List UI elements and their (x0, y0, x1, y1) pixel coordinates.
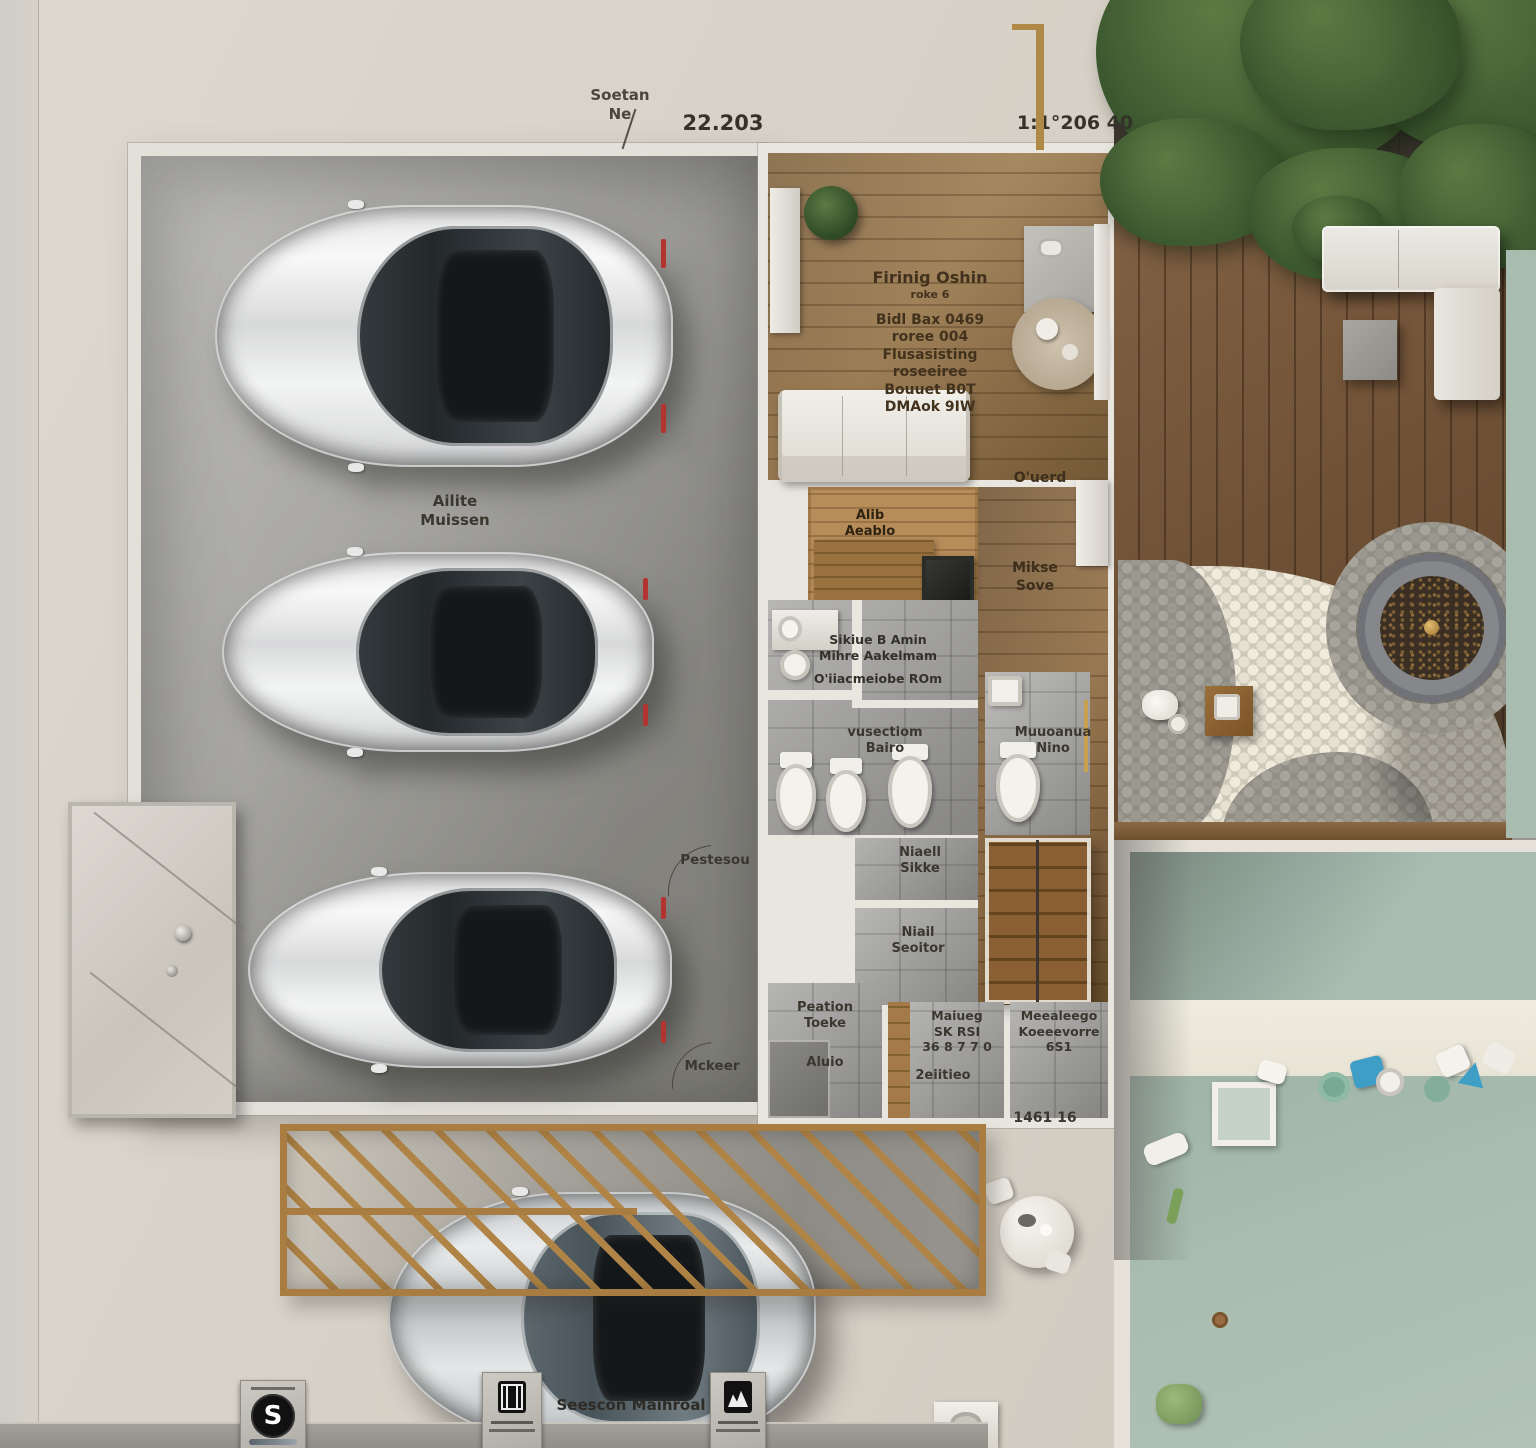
car-mirror (371, 1064, 387, 1073)
car-mirror (347, 547, 363, 556)
gate-plaque-text-2 (489, 1429, 535, 1432)
wc-sink (988, 676, 1022, 706)
storage-label: Peation Toeke Aluio (775, 1000, 875, 1071)
pool-sliver-right (1506, 250, 1536, 838)
laundry-label: Maiueg SK RSI 36 8 7 7 0 (912, 1008, 1002, 1055)
wc-label: Muuoanua Nino (1008, 725, 1098, 758)
gate-plaque-icon (498, 1381, 526, 1413)
gate-post-vertical (1036, 24, 1044, 150)
hall-mid-label: Mikse Sove (990, 560, 1080, 595)
facility-plaque-text-1 (718, 1421, 758, 1424)
car-taillight (661, 1021, 666, 1043)
hall-lower-label: Niaell Sikke (870, 845, 970, 878)
terrace-table-item-2 (1040, 1224, 1052, 1236)
toilet-bowl (996, 754, 1040, 822)
pool-float-ring-2 (1376, 1068, 1404, 1096)
garage-label: Ailite Muissen (380, 492, 530, 530)
terrace-table-item-1 (1018, 1214, 1036, 1227)
living-plant (804, 186, 858, 240)
s-sign-plaque: S (240, 1380, 306, 1448)
door-upper-label: Pestesou (660, 852, 770, 869)
path-bowl (1168, 714, 1188, 734)
sauna-label: Alib Aeablo (820, 508, 920, 541)
s-sign-icon: S (251, 1394, 295, 1438)
car-mirror (348, 463, 364, 472)
car-sunroof (452, 905, 562, 1034)
gate-knob-1 (175, 925, 191, 941)
s-sign-text-line (251, 1387, 295, 1390)
dim-top: 22.203 (668, 110, 778, 136)
car-taillight (661, 239, 666, 268)
car-taillight (643, 578, 648, 600)
pantry-label: Meealeego Koeeevorre 6S1 (1012, 1008, 1106, 1055)
sauna-bench (814, 540, 934, 600)
living-label: Firinig Oshin roke 6 Bidl Bax 0469 roree… (820, 268, 1040, 417)
car-mirror (371, 867, 387, 876)
pool-ladder (1212, 1082, 1276, 1146)
sofa-seam-3 (1398, 230, 1399, 288)
kitchen-sink (1038, 238, 1064, 258)
s-sign-smudge (249, 1439, 297, 1445)
car-taillight (643, 704, 648, 726)
bath-partition-h (768, 690, 860, 700)
path-tray (1214, 694, 1240, 720)
facility-plaque-text-2 (716, 1429, 760, 1432)
dim-bottom-right: 1461 16 (995, 1110, 1095, 1128)
car-white-3 (248, 872, 672, 1068)
terrace-chair-1 (983, 1176, 1015, 1206)
hall-top-label: O'uerd (995, 470, 1085, 488)
door-lower-label: Mckeer (662, 1058, 762, 1075)
facility-plaque (710, 1372, 766, 1448)
outdoor-sofa-h (1322, 226, 1500, 292)
sauna-stove (922, 556, 974, 606)
bath-partition-h2 (852, 700, 978, 708)
outdoor-ottoman (1343, 320, 1397, 380)
toilet-bowl (776, 764, 816, 830)
pool-float-dot (1424, 1076, 1450, 1102)
hall-bottom-label: Niail Seoitor (868, 925, 968, 958)
bottom-caption: Seescon Maihroal (556, 1396, 706, 1415)
gate-post-horizontal (1012, 24, 1042, 30)
gate-plaque-text-1 (491, 1421, 533, 1424)
deck-edge-beam (1114, 822, 1512, 840)
shower-label: vusectiom Bairo (830, 725, 940, 758)
terrace-chair-2 (1043, 1249, 1072, 1275)
car-white-2 (222, 552, 654, 752)
garage-gate-panel (68, 802, 236, 1118)
outdoor-sofa-v (1434, 288, 1500, 400)
car-mirror (347, 748, 363, 757)
toilet-1 (776, 752, 816, 830)
laundry-wood-strip (888, 1002, 910, 1118)
dim-top-right: 1:1°206 40 (1000, 112, 1150, 136)
toilet-bowl (888, 756, 932, 828)
car-white-1 (215, 205, 673, 467)
pool-float-ring-1 (1318, 1072, 1350, 1102)
fire-pit-burner (1424, 620, 1439, 635)
gate-plaque (482, 1372, 542, 1448)
car-mirror (348, 200, 364, 209)
site-label: Soetan Ne (570, 86, 670, 124)
facility-plaque-icon (724, 1381, 752, 1413)
car-taillight (661, 404, 666, 433)
car-sunroof (435, 250, 554, 423)
garden-watering-can (1156, 1384, 1202, 1424)
rug-table-2 (1062, 344, 1078, 360)
floor-plan-scene: Ailite Muissen Firinig Oshin roke 6 Bidl… (0, 0, 1536, 1448)
pergola-mid-beam (287, 1208, 637, 1215)
living-cabinet (770, 188, 800, 333)
car-sunroof (429, 586, 541, 718)
corridor-wardrobe (1076, 480, 1108, 566)
street-edge (0, 0, 39, 1448)
car-taillight (661, 897, 666, 919)
stairs-rail (1036, 840, 1039, 1002)
toilet-2 (826, 758, 866, 832)
garden-cup (1212, 1312, 1228, 1328)
toilet-bowl (826, 770, 866, 832)
bath-label: Sikiue B Amin Mihre Aakelmam O'iiacmeiob… (778, 632, 978, 687)
gate-knob-2 (166, 965, 178, 977)
laundry-label-2: 2eiitieo (898, 1068, 988, 1084)
kitchen-wall-units (1094, 224, 1110, 400)
